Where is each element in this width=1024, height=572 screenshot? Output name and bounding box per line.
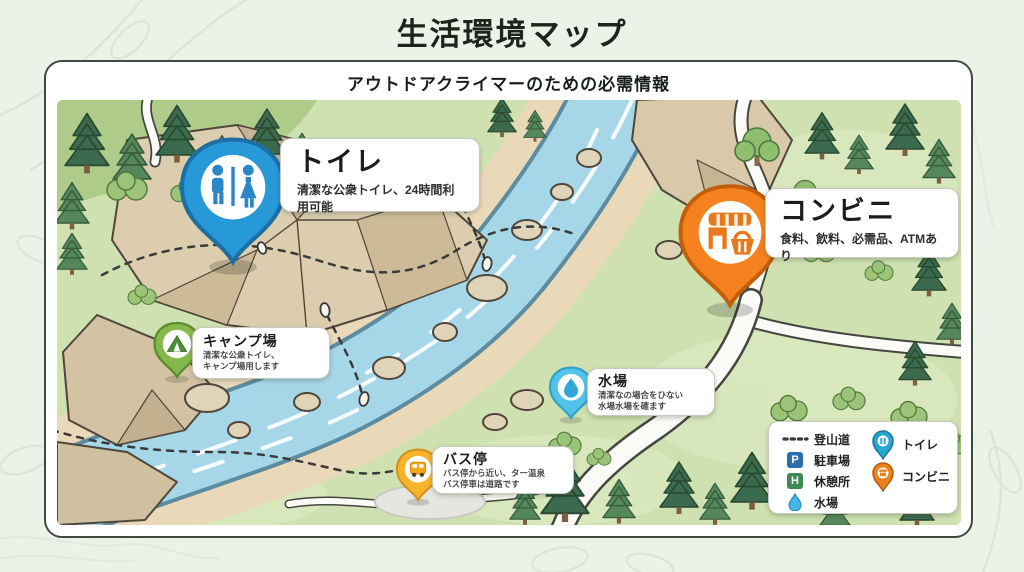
trail-dashes-icon: [781, 436, 809, 442]
campground-label-title: キャンプ場: [203, 332, 319, 350]
bus-stop-label-title: バス停: [443, 450, 563, 468]
map-legend: 登山道 P 駐車場 H 休憩所: [768, 421, 958, 514]
legend-label-toilet: トイレ: [902, 436, 938, 453]
water-label-description-line2: 水場水場を確ます: [598, 401, 704, 412]
campground-label-card: キャンプ場 清潔な公衆トイレ、 キャンプ場用します: [192, 327, 330, 379]
toilet-label-description: 清潔な公衆トイレ、24時間利用可能: [297, 181, 463, 215]
water-label-card: 水場 清潔なの場合をひない 水場水場を確ます: [587, 368, 715, 416]
bus-stop-label-description-line2: バス停車は道路です: [443, 479, 563, 490]
toilet-pin-icon: [869, 430, 897, 460]
convenience-label-description: 食料、飲料、必需品、ATMあり: [780, 230, 944, 264]
map-subtitle: アウトドアクライマーのための必需情報: [46, 70, 971, 95]
bus-stop-label-card: バス停 バス停から近い、ター温泉 バス停車は道路です: [432, 446, 574, 494]
page-title: 生活環境マップ: [0, 9, 1024, 54]
legend-row-water: 水場: [781, 492, 869, 512]
toilet-label-title: トイレ: [297, 146, 463, 178]
map-area: トイレ 清潔な公衆トイレ、24時間利用可能 コンビニ 食料、飲料、必需品、ATM…: [57, 100, 961, 525]
poster-page: 生活環境マップ アウトドアクライマーのための必需情報: [0, 0, 1024, 572]
legend-label-parking: 駐車場: [814, 452, 850, 469]
legend-label-rest-area: 休憩所: [814, 473, 850, 490]
bus-stop-label-description-line1: バス停から近い、ター温泉: [443, 468, 563, 479]
convenience-label-card: コンビニ 食料、飲料、必需品、ATMあり: [765, 188, 959, 258]
legend-label-water: 水場: [814, 494, 838, 511]
parking-icon: P: [781, 452, 809, 468]
legend-row-convenience: コンビニ: [869, 461, 950, 492]
legend-row-trail: 登山道: [781, 429, 869, 449]
water-label-description-line1: 清潔なの場合をひない: [598, 390, 704, 401]
legend-row-parking: P 駐車場: [781, 450, 869, 470]
legend-row-toilet: トイレ: [869, 429, 950, 460]
water-drop-icon: [781, 493, 809, 511]
convenience-label-title: コンビニ: [780, 195, 944, 227]
campground-label-description-line1: 清潔な公衆トイレ、: [203, 350, 319, 361]
toilet-label-card: トイレ 清潔な公衆トイレ、24時間利用可能: [280, 138, 480, 212]
water-label-title: 水場: [598, 372, 704, 390]
convenience-pin-icon: [869, 462, 897, 492]
rest-area-icon: H: [781, 473, 809, 489]
legend-label-trail: 登山道: [814, 431, 850, 448]
map-card: アウトドアクライマーのための必需情報: [44, 60, 973, 538]
legend-label-convenience: コンビニ: [902, 468, 950, 485]
campground-label-description-line2: キャンプ場用します: [203, 361, 319, 372]
legend-row-rest-area: H 休憩所: [781, 471, 869, 491]
